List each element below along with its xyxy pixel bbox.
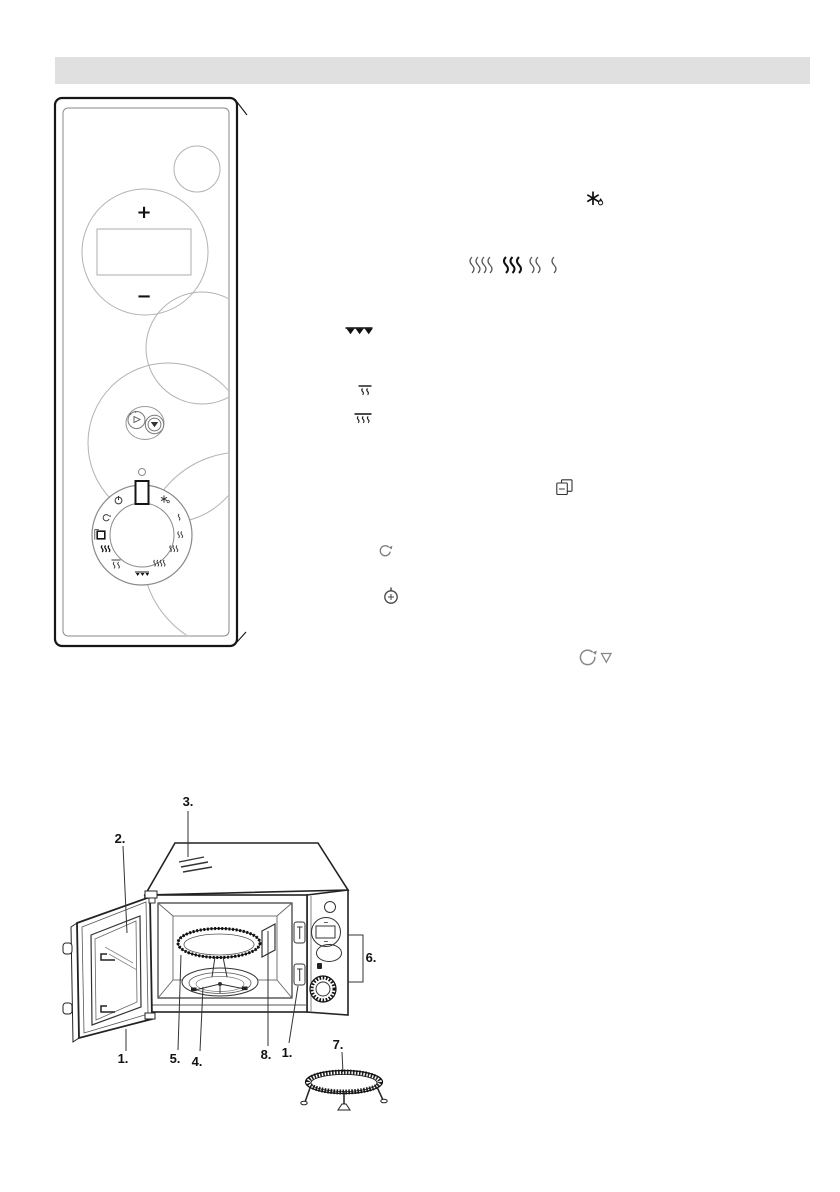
three-waves-bold-icon	[504, 257, 521, 273]
grill-triangles-icon	[345, 327, 375, 337]
door-hinge-pin	[63, 1003, 72, 1014]
grill-rack	[301, 1052, 387, 1110]
door-window	[91, 916, 141, 1025]
rotate-arrow-triangle-icon	[578, 646, 616, 670]
door-hinge-pin	[63, 943, 72, 954]
label-door-window: 2.	[115, 831, 126, 846]
oven-door	[63, 891, 157, 1042]
label-vents: 3.	[183, 794, 194, 809]
oven-figure: 3. 2. 1. 5. 4. 8. 1. 6. 7.	[55, 783, 395, 1135]
plus-label: +	[136, 202, 151, 223]
stacked-pages-icon	[556, 479, 576, 497]
label-grill-rack: 7.	[333, 1037, 344, 1052]
display-window	[97, 229, 191, 275]
clock-plus-icon	[382, 586, 400, 606]
defrost-icon	[585, 190, 605, 210]
bell-button-icon	[145, 415, 163, 433]
line-three-waves-icon	[354, 413, 376, 427]
roller-ring	[182, 968, 258, 996]
oven-cavity	[158, 903, 292, 998]
button-cluster	[126, 407, 164, 440]
label-bracket	[348, 935, 363, 982]
label-waveguide-cover: 8.	[261, 1047, 272, 1062]
dial-pointer	[136, 481, 149, 504]
control-panel-figure: + −	[50, 90, 250, 656]
one-wave-icon	[552, 257, 556, 273]
manual-page: + −	[0, 0, 840, 1192]
label-roller-ring: 4.	[192, 1054, 203, 1069]
panel-corner-fold	[237, 102, 247, 642]
timer-button-icon	[128, 411, 145, 428]
two-waves-icon	[530, 257, 540, 273]
label-door-bottom: 1.	[118, 1051, 129, 1066]
label-glass-tray: 5.	[170, 1051, 181, 1066]
line-two-waves-icon	[358, 385, 376, 399]
label-door-latch: 1.	[282, 1045, 293, 1060]
minus-label: −	[136, 286, 151, 307]
label-control-panel: 6.	[366, 950, 377, 965]
section-header-bar	[55, 57, 810, 84]
power-level-icons	[466, 254, 566, 278]
rotate-arrow-icon	[377, 544, 395, 559]
four-waves-icon	[470, 257, 492, 273]
